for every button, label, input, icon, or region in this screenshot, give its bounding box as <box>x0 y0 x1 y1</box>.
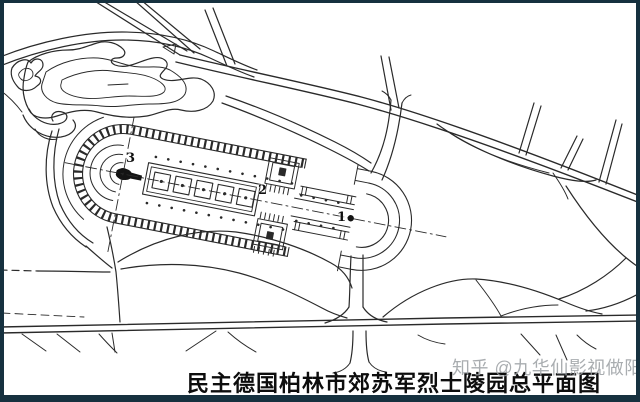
main-avenue <box>176 8 640 203</box>
marker-2: 2 <box>258 184 267 197</box>
park-paths <box>0 96 640 322</box>
zhihu-watermark: 知乎 @九华仙影视做阳 <box>452 354 640 380</box>
marker-1: 1 <box>337 211 346 224</box>
site-plan-drawing <box>0 0 640 402</box>
side-streets-top <box>93 0 200 55</box>
road-over-lake <box>0 32 257 77</box>
scanned-figure: 1 2 3 知乎 @九华仙影视做阳 民主德国柏林市郊苏军烈士陵园总平面图 <box>0 0 640 402</box>
entrance-approach-road <box>371 91 411 180</box>
lake-icon <box>0 42 214 140</box>
marker-3: 3 <box>126 152 135 165</box>
boundary-road <box>0 313 640 360</box>
